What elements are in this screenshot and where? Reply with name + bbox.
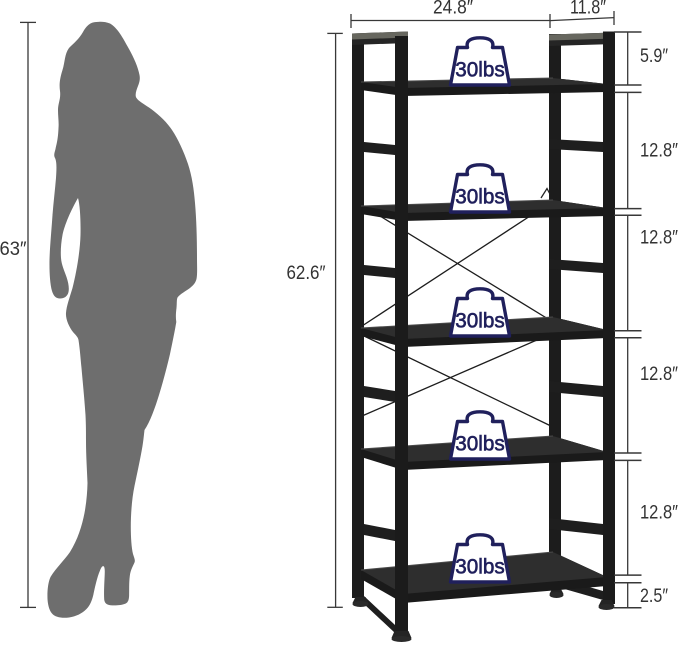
svg-text:30lbs: 30lbs [455, 310, 505, 333]
svg-text:12.8″: 12.8″ [640, 503, 678, 524]
svg-text:30lbs: 30lbs [455, 556, 505, 579]
svg-text:5.9″: 5.9″ [640, 46, 668, 67]
svg-text:30lbs: 30lbs [455, 59, 505, 82]
svg-text:11.8″: 11.8″ [570, 0, 606, 19]
svg-text:62.6″: 62.6″ [287, 263, 326, 284]
svg-text:2.5″: 2.5″ [640, 586, 668, 607]
svg-text:24.8″: 24.8″ [433, 0, 473, 19]
svg-text:12.8″: 12.8″ [640, 141, 678, 162]
svg-text:12.8″: 12.8″ [640, 364, 678, 385]
svg-text:30lbs: 30lbs [455, 433, 505, 456]
svg-text:30lbs: 30lbs [455, 186, 505, 209]
svg-text:63″: 63″ [0, 239, 27, 260]
svg-text:12.8″: 12.8″ [640, 227, 678, 248]
